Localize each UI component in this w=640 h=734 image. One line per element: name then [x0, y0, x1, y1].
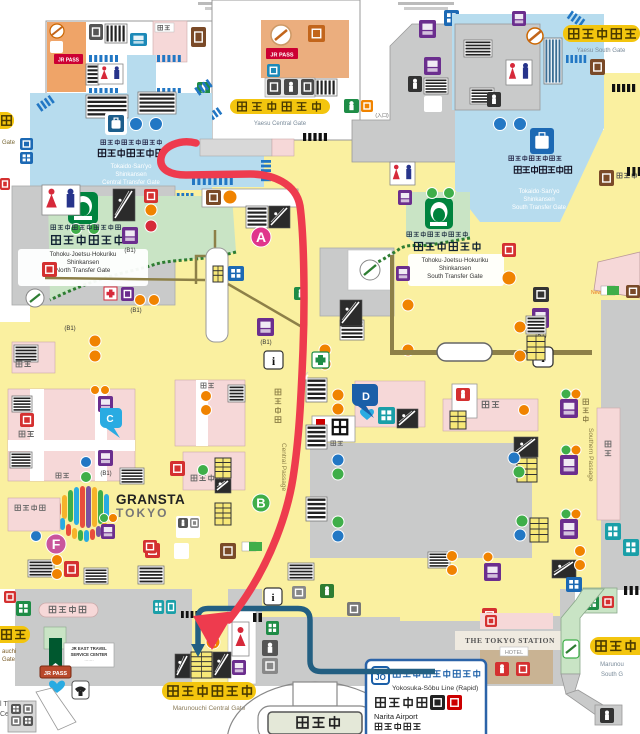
svg-text:Yaesu Central Gate: Yaesu Central Gate	[254, 121, 307, 127]
svg-text:Yaesu South Gate: Yaesu South Gate	[577, 48, 626, 54]
svg-text:(B1): (B1)	[130, 308, 141, 314]
svg-text:TOKYO: TOKYO	[116, 506, 168, 520]
svg-text:i: i	[271, 592, 274, 604]
svg-text:HOTEL: HOTEL	[505, 650, 523, 656]
svg-text:Gate: Gate	[2, 657, 16, 663]
svg-text:JR PASS: JR PASS	[58, 58, 80, 64]
svg-text:auchi: auchi	[2, 649, 16, 655]
svg-text:Central Passage: Central Passage	[280, 443, 287, 491]
svg-text:Gate: Gate	[2, 140, 16, 146]
svg-text:A: A	[256, 229, 266, 245]
svg-text:Southern Passage: Southern Passage	[587, 428, 594, 482]
svg-text:Marunou: Marunou	[600, 662, 624, 668]
svg-text:New: New	[591, 290, 601, 296]
svg-text:Shinkansen: Shinkansen	[115, 172, 146, 178]
svg-text:JR EAST TRAVEL: JR EAST TRAVEL	[71, 646, 107, 651]
svg-text:Shinkansen: Shinkansen	[67, 259, 100, 266]
svg-text:Tohoku·Joetsu·Hokuriku: Tohoku·Joetsu·Hokuriku	[422, 257, 489, 264]
svg-text:JR PASS: JR PASS	[270, 53, 293, 59]
svg-text:(B1): (B1)	[124, 248, 135, 254]
svg-text:GRANSTA: GRANSTA	[116, 492, 185, 507]
svg-text:Shinkansen: Shinkansen	[523, 197, 554, 203]
svg-text:Marunouchi Central Gate: Marunouchi Central Gate	[173, 705, 246, 712]
svg-text:Shinkansen: Shinkansen	[439, 265, 472, 272]
svg-text:THE TOKYO STATION: THE TOKYO STATION	[465, 636, 555, 645]
svg-text:Tokaido·San'yo: Tokaido·San'yo	[111, 164, 153, 170]
svg-text:(B1): (B1)	[100, 471, 111, 477]
svg-text:F: F	[52, 536, 61, 552]
svg-text:(B1): (B1)	[64, 326, 75, 332]
svg-text:·······: ·······	[84, 658, 93, 663]
svg-text:B: B	[256, 496, 265, 511]
svg-text:South Transfer Gate: South Transfer Gate	[512, 205, 567, 211]
svg-text:South G: South G	[601, 672, 623, 678]
svg-text:Tohoku·Joetsu·Hokuriku: Tohoku·Joetsu·Hokuriku	[50, 251, 117, 258]
svg-text:JO: JO	[375, 673, 386, 682]
svg-text:North Transfer Gate: North Transfer Gate	[56, 267, 111, 274]
svg-text:South Transfer Gate: South Transfer Gate	[427, 273, 483, 280]
svg-text:Central Transfer Gate: Central Transfer Gate	[102, 180, 160, 186]
svg-text:(B1): (B1)	[260, 340, 271, 346]
svg-text:JR PASS: JR PASS	[44, 671, 67, 677]
svg-text:C: C	[106, 414, 113, 425]
svg-text:Tokaido·San'yo: Tokaido·San'yo	[519, 189, 561, 195]
svg-text:D: D	[362, 391, 370, 403]
svg-text:Yokosuka-Sōbu Line (Rapid): Yokosuka-Sōbu Line (Rapid)	[392, 685, 478, 692]
svg-text:SERVICE CENTER: SERVICE CENTER	[71, 652, 108, 657]
svg-text:Narita Airport: Narita Airport	[374, 712, 419, 721]
svg-text:(入口): (入口)	[375, 113, 389, 119]
